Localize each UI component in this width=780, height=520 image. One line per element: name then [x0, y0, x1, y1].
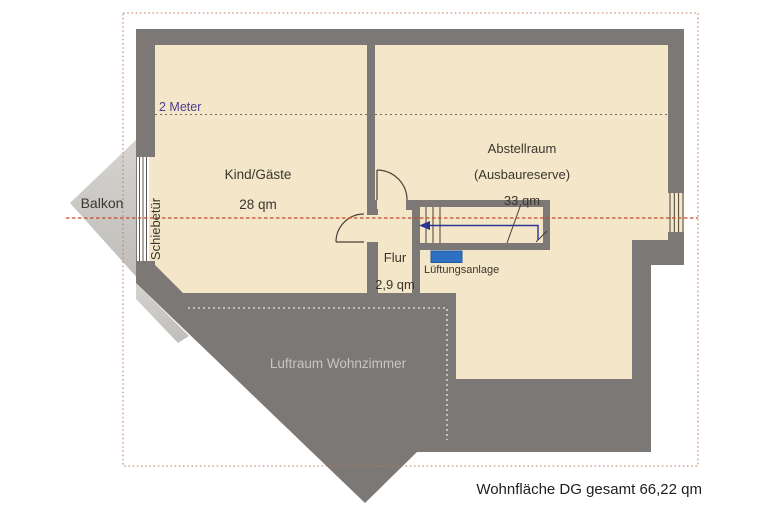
schiebetuer-label: Schiebetür	[148, 169, 164, 289]
two-meter-label: 2 Meter	[159, 100, 201, 114]
wall-flur-left-upper	[367, 209, 378, 215]
balkon-label: Balkon	[62, 195, 142, 211]
luftraum-label: Luftraum Wohnzimmer	[258, 356, 418, 371]
room-label-kind-gaeste: Kind/Gäste 28 qm	[178, 152, 338, 227]
room-name: Flur	[355, 251, 435, 265]
room-area: 2,9 qm	[355, 278, 435, 292]
room-name: Kind/Gäste	[178, 167, 338, 182]
total-area-label: Wohnfläche DG gesamt 66,22 qm	[430, 481, 702, 498]
room-label-abstellraum: Abstellraum (Ausbaureserve) 33 qm	[442, 129, 602, 220]
room-note: (Ausbaureserve)	[442, 168, 602, 181]
room-label-flur: Flur 2,9 qm	[355, 237, 435, 305]
ventilation-label: Lüftungsanlage	[424, 264, 499, 276]
ventilation-unit-box	[431, 251, 462, 263]
floor-plan-page: 2 Meter Balkon Schiebetür Kind/Gäste 28 …	[0, 0, 780, 520]
wall-pier-right	[406, 200, 413, 210]
room-abstellraum-floor-lower	[456, 293, 632, 379]
wall-pier-left	[367, 200, 377, 210]
room-area: 33 qm	[442, 194, 602, 207]
room-name: Abstellraum	[442, 142, 602, 155]
room-area: 28 qm	[178, 197, 338, 212]
